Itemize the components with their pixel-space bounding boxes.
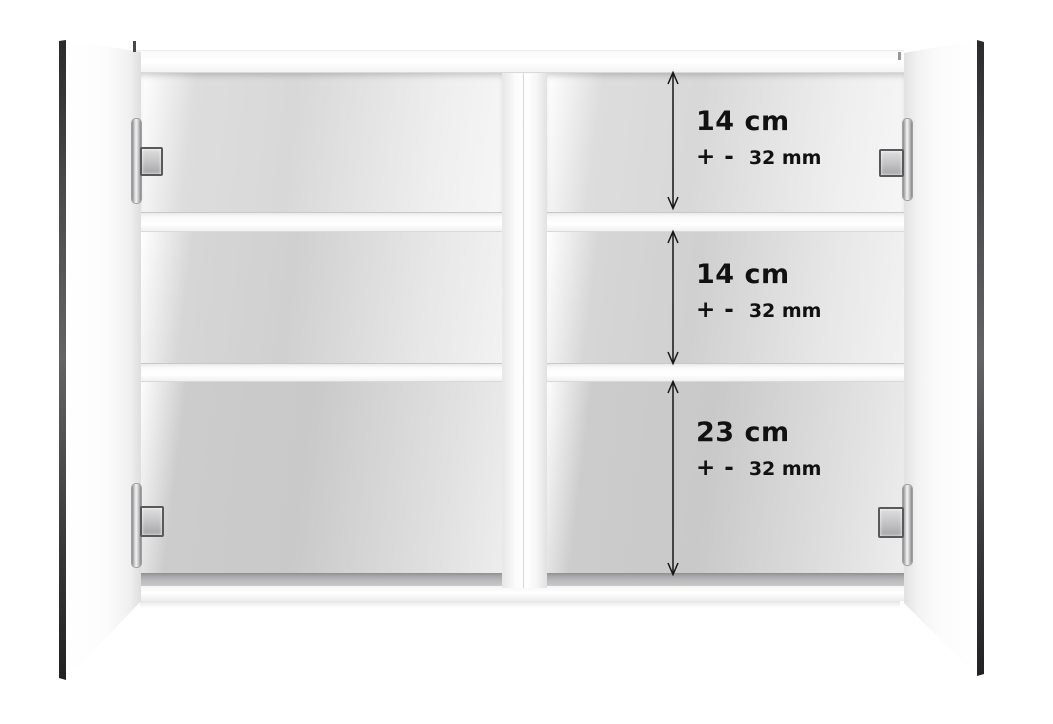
mirror-cabinet-product-image: 14 cm +-32 mm 14 cm +-32 mm 23 cm +-32 m… (0, 0, 1053, 724)
right-door-mirror-edge (977, 40, 984, 676)
center-divider (502, 73, 547, 588)
top-right-hinge-plate (903, 119, 912, 200)
tolerance-value: 32 mm (749, 458, 822, 480)
top-left-hinge-cup (140, 147, 163, 176)
plus-sign: + (696, 297, 715, 323)
left-door-mirror-edge (59, 40, 66, 680)
cabinet-bottom-shadow (140, 601, 900, 608)
bottom-shadow-strip (547, 573, 904, 586)
dimension-arrow-icon (664, 229, 682, 366)
plus-sign: + (696, 455, 715, 481)
tolerance-label: +-32 mm (696, 299, 821, 322)
bottom-right-hinge-cup (878, 507, 904, 538)
right-door (904, 40, 984, 676)
shelf (547, 212, 904, 232)
divider-seam (523, 73, 524, 588)
shelf (141, 363, 502, 382)
tolerance-label: +-32 mm (696, 146, 821, 169)
left-door-corner-shadow (133, 41, 136, 52)
top-right-hinge-cup (879, 149, 904, 177)
cabinet-bottom-panel (133, 586, 904, 601)
right-door-face (904, 40, 977, 676)
dimension-arrow-icon (664, 379, 682, 577)
section-height-label: 14 cm (696, 261, 821, 288)
right-door-corner-shadow (898, 52, 901, 60)
shelf-section-bottom (141, 382, 502, 573)
plus-sign: + (696, 144, 715, 170)
bottom-shadow-strip (141, 573, 502, 586)
minus-sign: - (724, 144, 734, 170)
tolerance-value: 32 mm (749, 300, 822, 322)
shelf-section-middle (141, 232, 502, 363)
section-height-label: 23 cm (696, 419, 821, 446)
section-height-label: 14 cm (696, 108, 821, 135)
cabinet-top-panel (133, 50, 904, 73)
dimension-annotation: 14 cm +-32 mm (696, 261, 821, 322)
shelf (547, 363, 904, 382)
bottom-right-hinge-plate (903, 485, 912, 565)
shelf (141, 212, 502, 232)
shelf-section-top (141, 73, 502, 212)
dimension-annotation: 14 cm +-32 mm (696, 108, 821, 169)
minus-sign: - (724, 297, 734, 323)
minus-sign: - (724, 455, 734, 481)
left-door-face (66, 40, 141, 680)
dimension-arrow-icon (664, 70, 682, 211)
compartment-left (141, 73, 502, 586)
tolerance-value: 32 mm (749, 147, 822, 169)
left-door (59, 40, 141, 680)
bottom-left-hinge-cup (140, 506, 164, 537)
tolerance-label: +-32 mm (696, 457, 821, 480)
dimension-annotation: 23 cm +-32 mm (696, 419, 821, 480)
